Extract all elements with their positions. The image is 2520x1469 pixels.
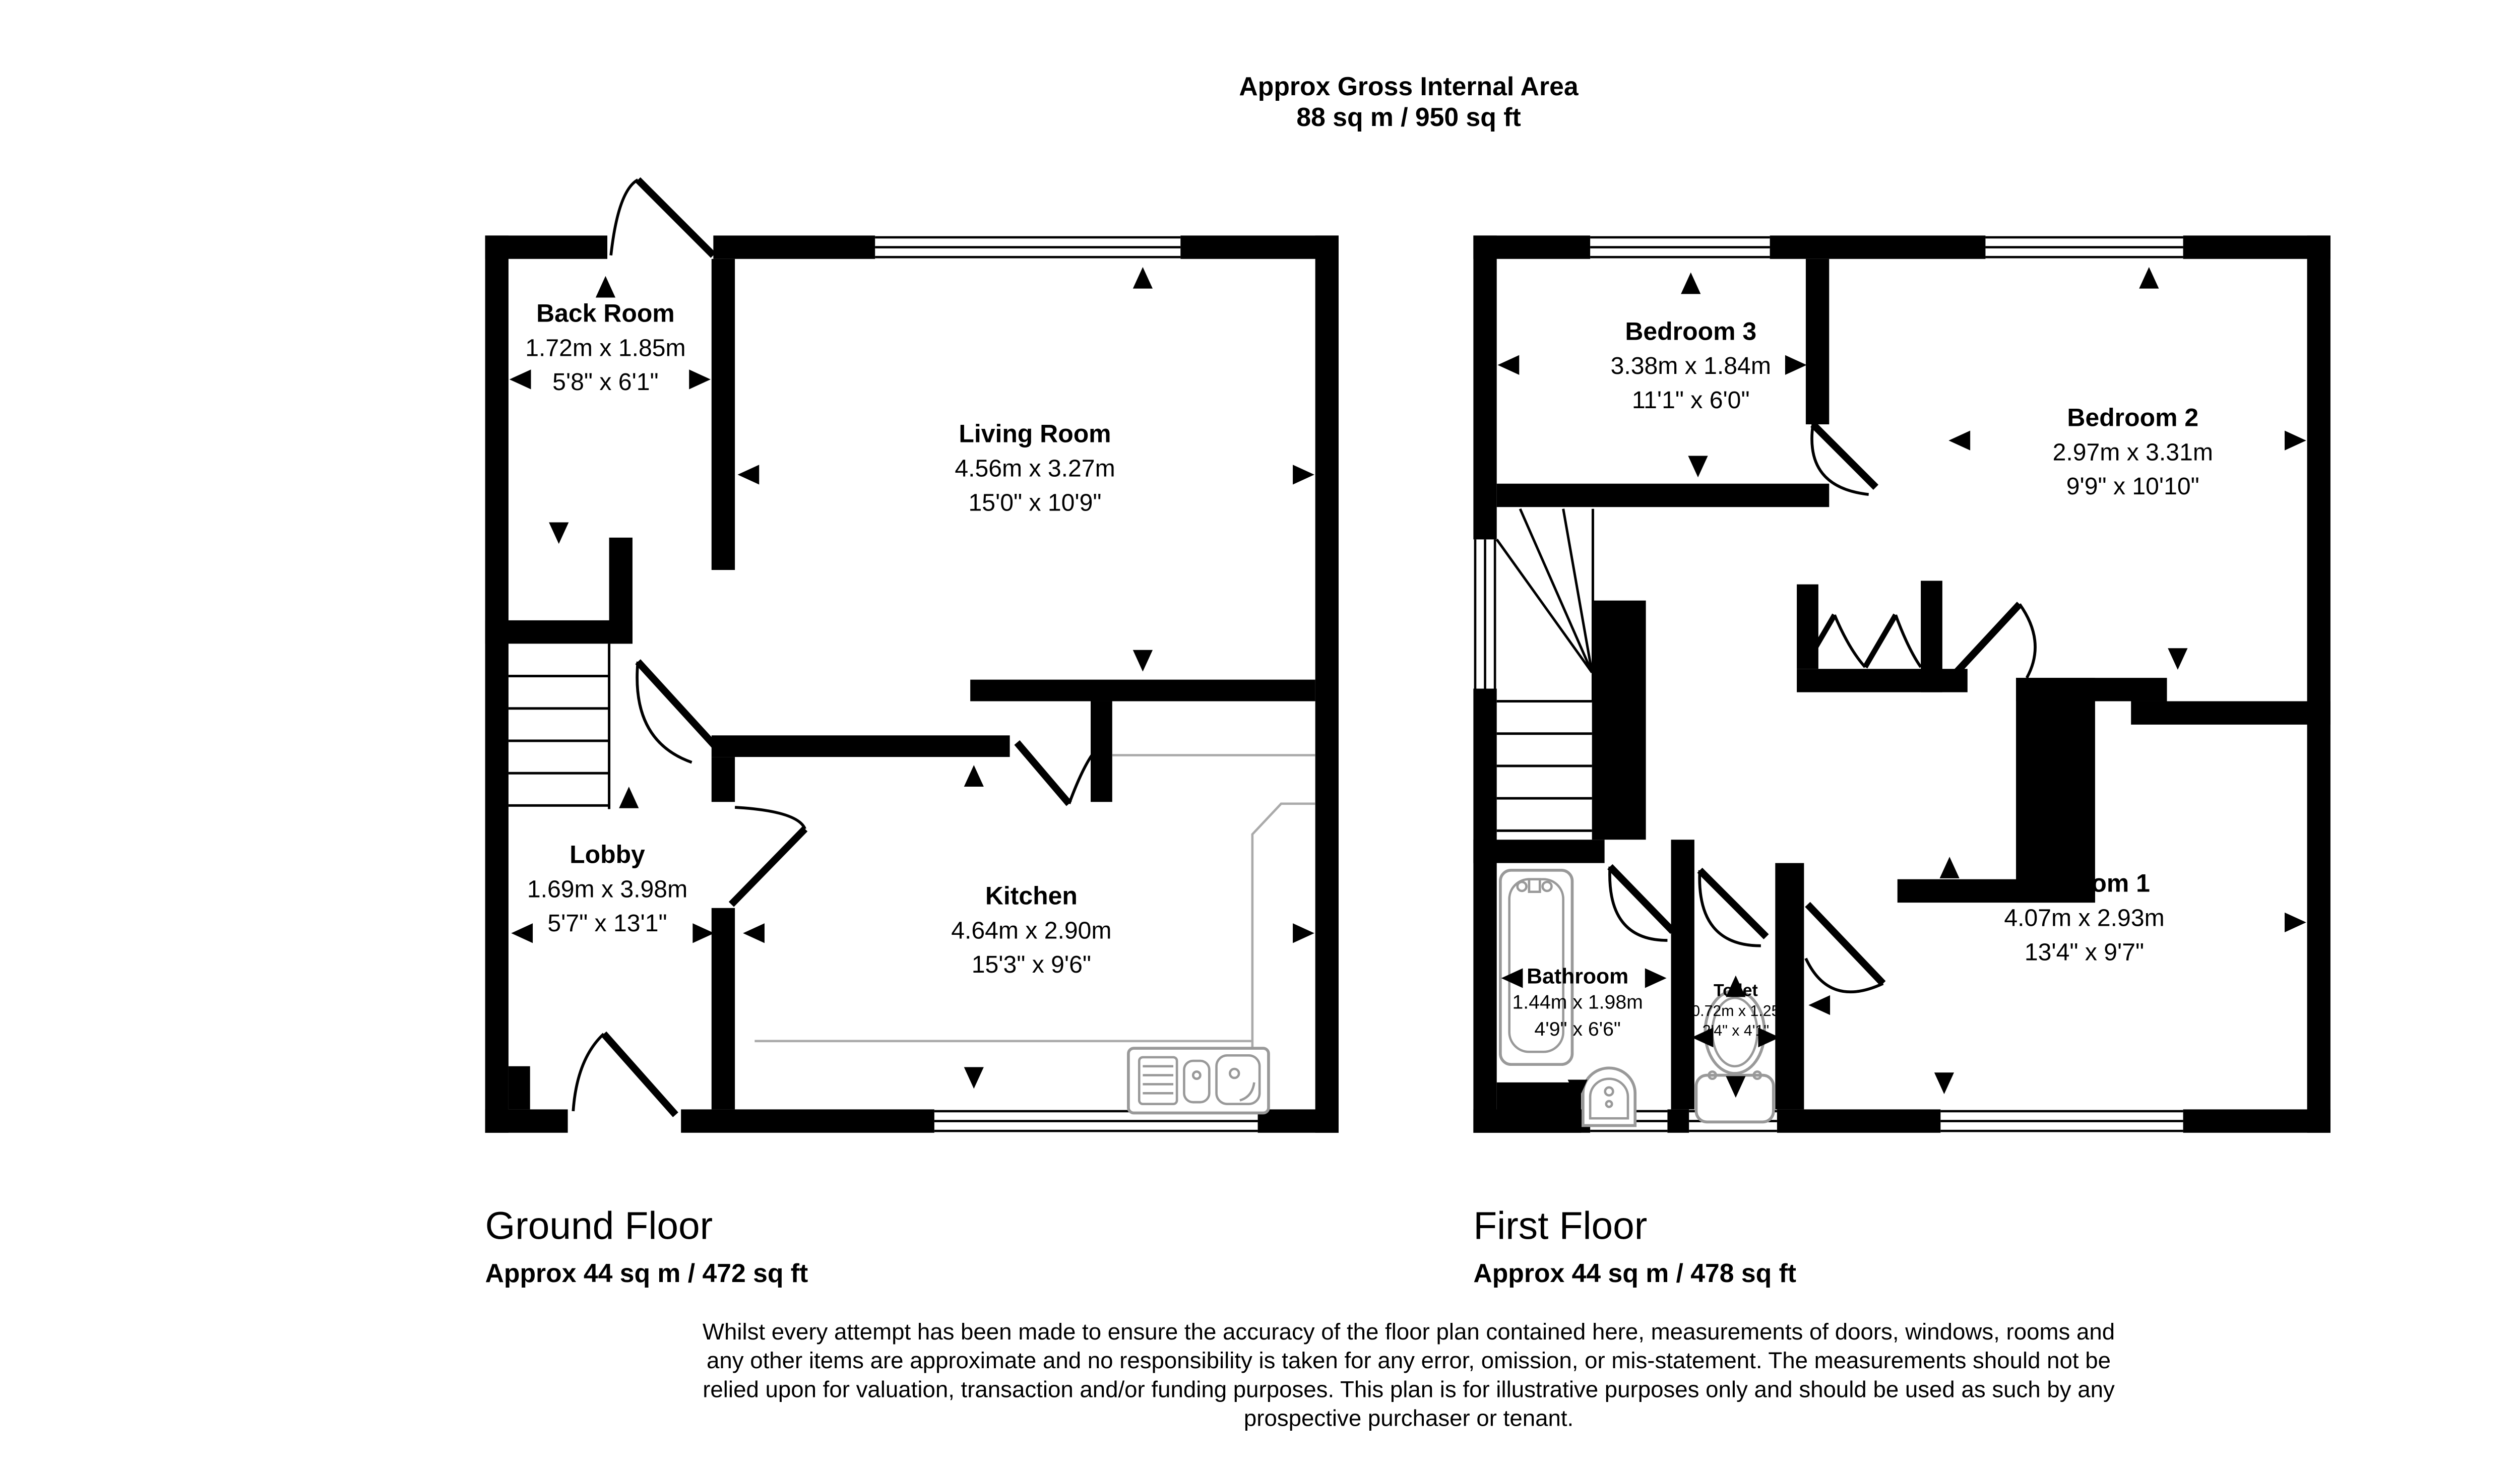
toilet-door-icon [1699, 870, 1766, 946]
bedroom1-door-icon [1806, 905, 1883, 992]
back-door-icon [611, 180, 713, 256]
room-label-kitchen: Kitchen 4.64m x 2.90m 15'3" x 9'6" [951, 879, 1111, 982]
first-stairs-icon [1497, 509, 1593, 831]
ground-stairs-icon [509, 644, 609, 809]
living-room-window-icon [875, 237, 1180, 257]
gross-area-value: 88 sq m / 950 sq ft [0, 104, 2520, 135]
room-label-lobby: Lobby 1.69m x 3.98m 5'7" x 13'1" [527, 838, 687, 940]
floorplan-drawing [0, 0, 2520, 1469]
room-label-bedroom-2: Bedroom 2 2.97m x 3.31m 9'9" x 10'10" [2053, 401, 2213, 503]
first-floor-area: Approx 44 sq m / 478 sq ft [1473, 1260, 1796, 1289]
room-label-bedroom-3: Bedroom 3 3.38m x 1.84m 11'1" x 6'0" [1611, 314, 1771, 417]
room-label-bathroom: Bathroom 1.44m x 1.98m 4'9" x 6'6" [1512, 964, 1643, 1045]
floorplan-page: Approx Gross Internal Area 88 sq m / 950… [0, 0, 2520, 1469]
room-label-living-room: Living Room 4.56m x 3.27m 15'0" x 10'9" [955, 417, 1115, 520]
bedroom2-window-icon [1985, 237, 2183, 257]
bedroom1-window-icon [1940, 1111, 2183, 1131]
basin-icon [1583, 1068, 1635, 1125]
ground-floor-label: Ground Floor [485, 1204, 713, 1249]
disclaimer-text: Whilst every attempt has been made to en… [0, 1318, 2520, 1433]
lobby-kitchen-door-icon [731, 807, 805, 905]
bedroom3-window-icon [1590, 237, 1770, 257]
room-label-toilet: Toilet 0.72m x 1.25 2'4" x 4'1" [1691, 982, 1780, 1041]
page-title: Approx Gross Internal Area 88 sq m / 950… [0, 74, 2520, 135]
ground-floor-area: Approx 44 sq m / 472 sq ft [485, 1260, 808, 1289]
landing-window-icon [1475, 539, 1495, 688]
living-lobby-door-icon [637, 662, 715, 762]
bathroom-door-icon [1610, 867, 1673, 940]
room-label-bedroom-1: Bedroom 1 4.07m x 2.93m 13'4" x 9'7" [2004, 867, 2164, 969]
cupboard-doors-icon [1804, 615, 1921, 667]
kitchen-sink-icon [1128, 1048, 1269, 1113]
room-label-back-room: Back Room 1.72m x 1.85m 5'8" x 6'1" [525, 297, 685, 399]
living-kitchen-door-icon [1017, 743, 1102, 804]
bedroom2-door-icon [1949, 604, 2035, 680]
gross-area-title: Approx Gross Internal Area [0, 74, 2520, 104]
first-floor-label: First Floor [1473, 1204, 1647, 1249]
front-door-icon [573, 1034, 675, 1115]
